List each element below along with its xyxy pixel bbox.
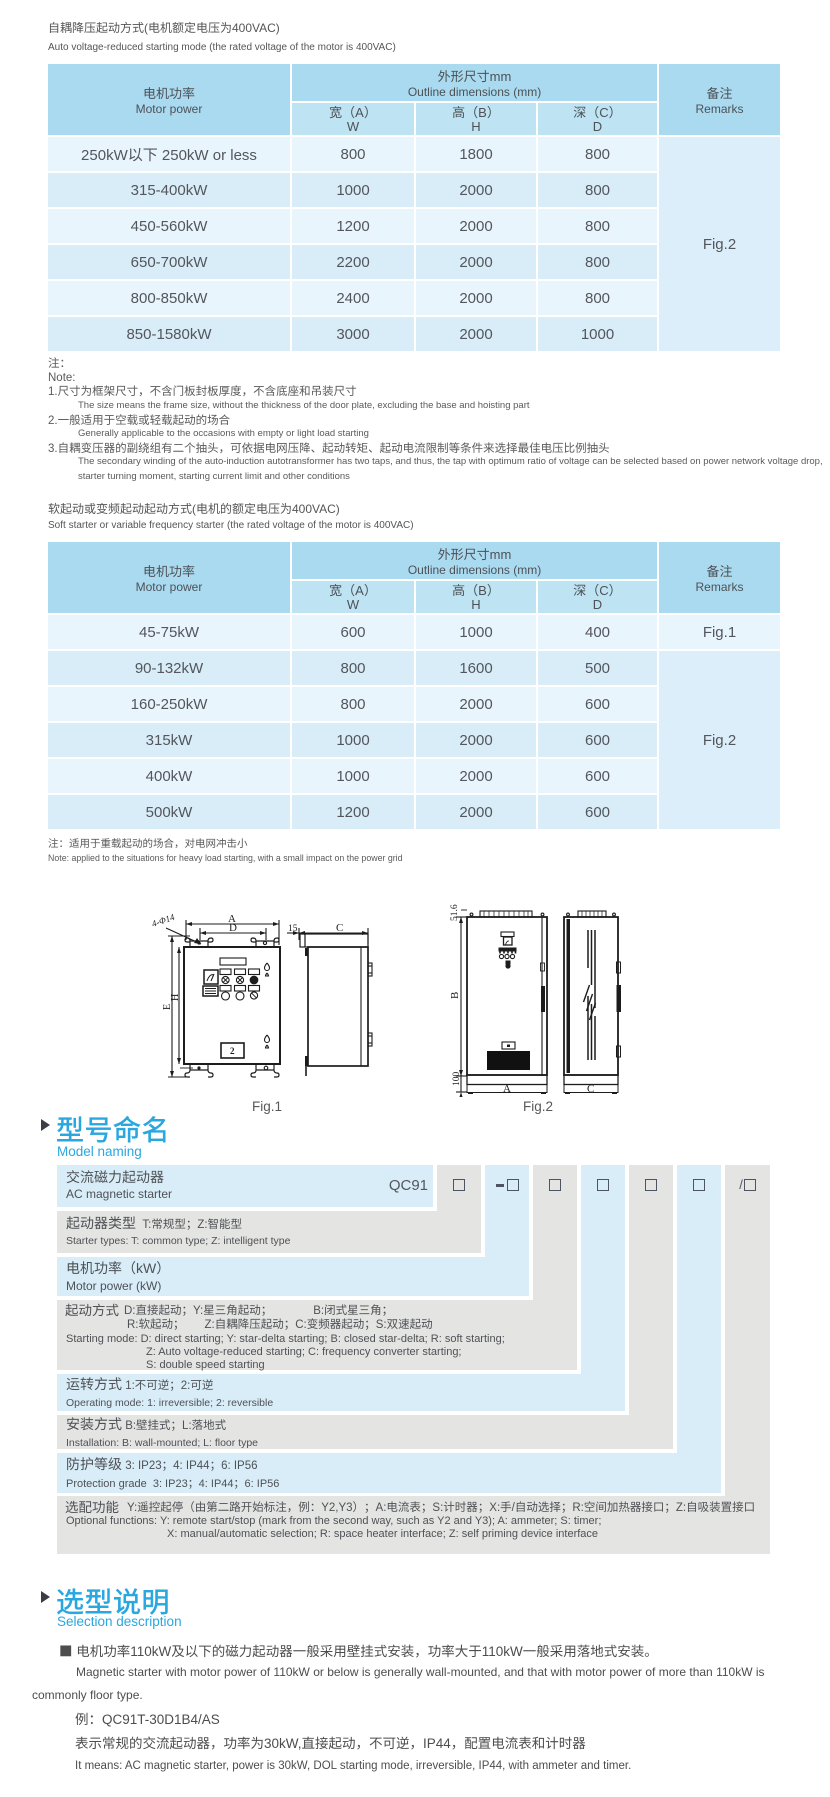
svg-text:C: C — [587, 1083, 594, 1095]
svg-text:2: 2 — [230, 1046, 235, 1056]
svg-text:100: 100 — [452, 1072, 462, 1087]
svg-text:H: H — [170, 994, 181, 1001]
svg-text:B: B — [449, 992, 461, 999]
svg-text:E: E — [162, 1004, 173, 1010]
svg-text:D: D — [229, 922, 237, 934]
svg-text:A: A — [503, 1083, 511, 1095]
svg-text:51.6: 51.6 — [450, 904, 460, 921]
svg-text:4-Φ14: 4-Φ14 — [150, 912, 176, 929]
svg-text:C: C — [336, 922, 343, 934]
